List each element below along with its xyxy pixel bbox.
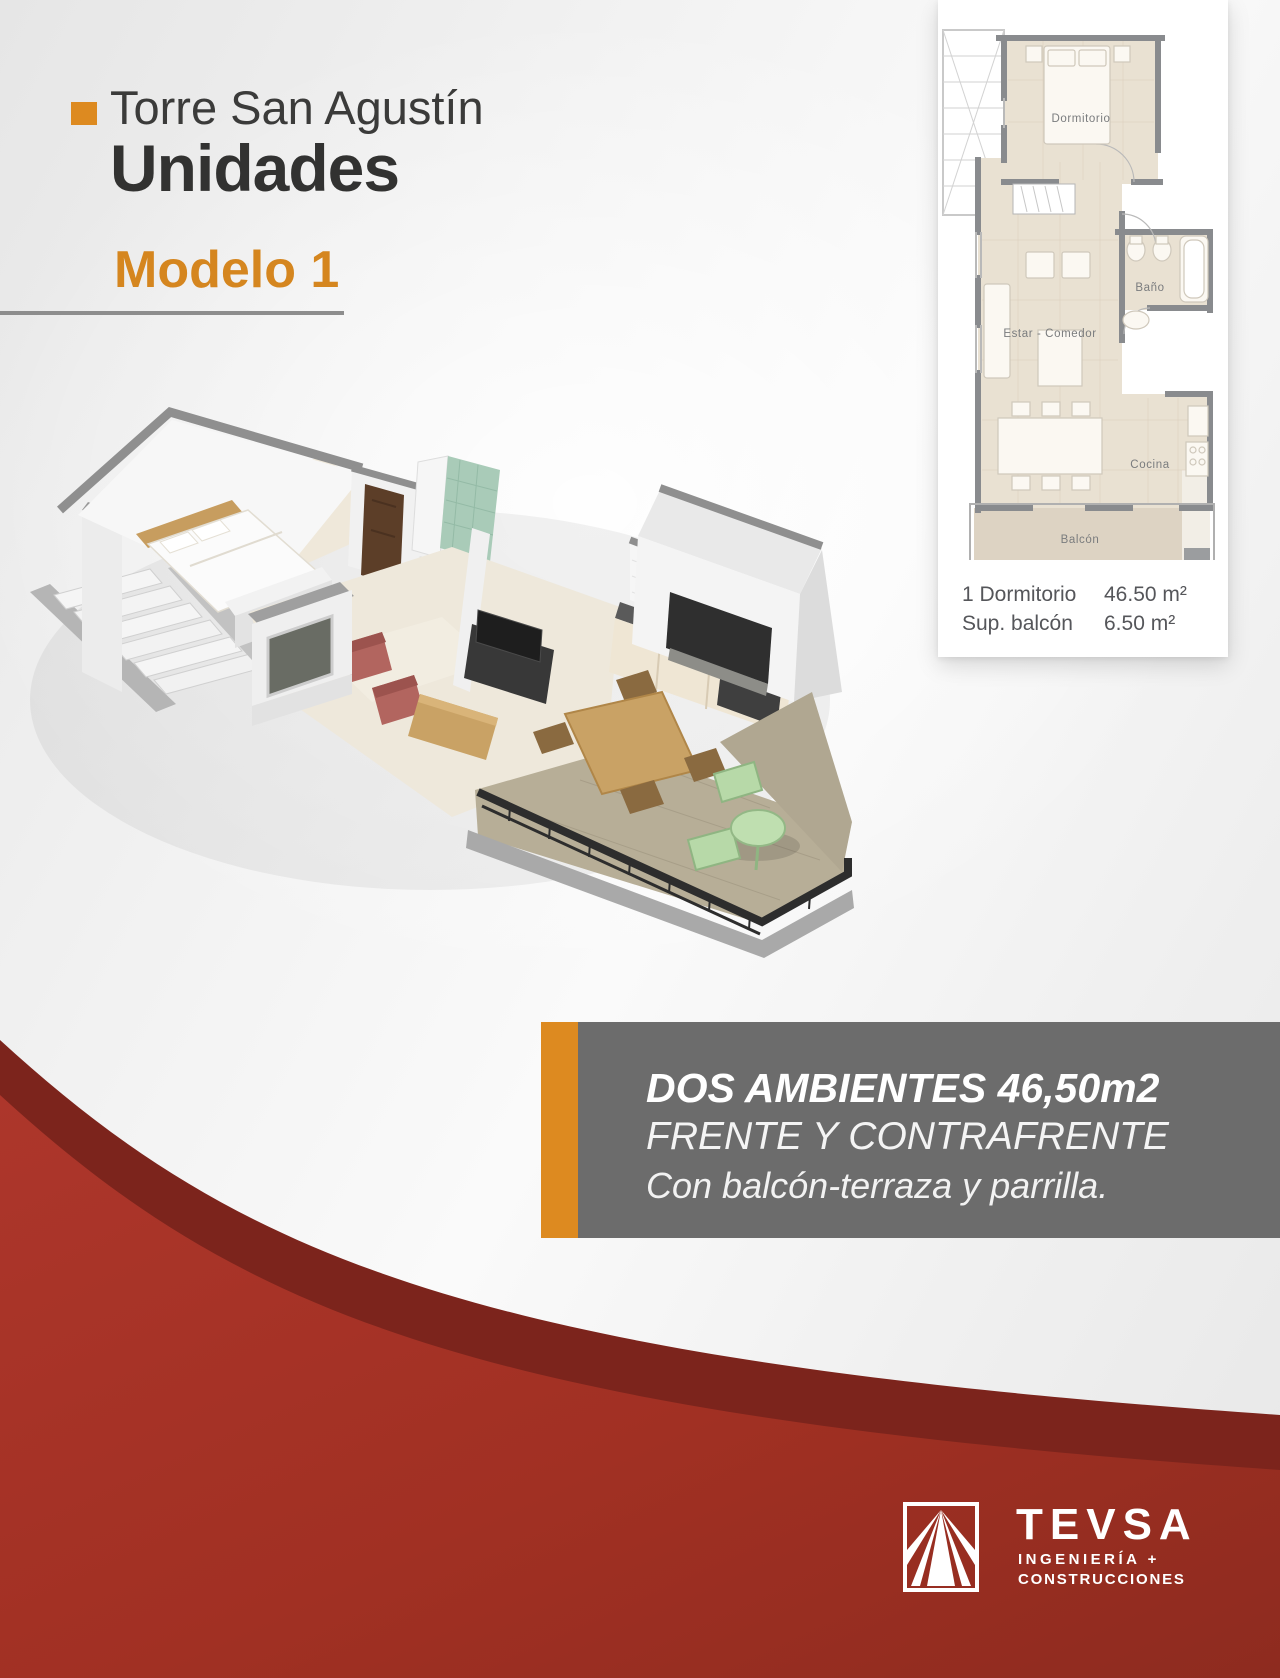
apartment-3d-render: [20, 360, 860, 960]
model-label: Modelo 1: [114, 240, 339, 300]
apartment-3d-render-graphic: [20, 360, 860, 960]
bullet-square-icon: [71, 102, 97, 125]
room-label-balcony: Balcón: [1061, 534, 1100, 546]
room-label-bedroom: Dormitorio: [1051, 113, 1110, 125]
stat-value: 46.50 m²: [1104, 580, 1212, 609]
divider-rule: [0, 311, 344, 315]
tevsa-logo-icon: [903, 1502, 979, 1592]
brand-name: TEVSA: [1016, 1500, 1198, 1550]
floorplan-graphic: Dormitorio Baño Estar - Comedor Cocina B…: [938, 0, 1228, 560]
page-title: Unidades: [110, 130, 399, 206]
brand-tagline-2: CONSTRUCCIONES: [1018, 1571, 1186, 1588]
brand-tagline-1: INGENIERÍA +: [1018, 1551, 1160, 1568]
west-wall: [82, 510, 122, 692]
room-label-kitchen: Cocina: [1130, 459, 1169, 471]
stat-label: 1 Dormitorio: [962, 580, 1104, 609]
room-label-bath: Baño: [1135, 282, 1164, 294]
floorplan-stats: 1 Dormitorio 46.50 m² Sup. balcón 6.50 m…: [962, 580, 1212, 638]
floorplan-card: Dormitorio Baño Estar - Comedor Cocina B…: [938, 0, 1228, 657]
project-title: Torre San Agustín: [110, 80, 484, 135]
stat-row-balcony: Sup. balcón 6.50 m²: [962, 609, 1212, 638]
stat-row-bedroom: 1 Dormitorio 46.50 m²: [962, 580, 1212, 609]
stat-value: 6.50 m²: [1104, 609, 1212, 638]
stat-label: Sup. balcón: [962, 609, 1104, 638]
closet: [1013, 184, 1075, 214]
room-label-living: Estar - Comedor: [1003, 328, 1096, 340]
